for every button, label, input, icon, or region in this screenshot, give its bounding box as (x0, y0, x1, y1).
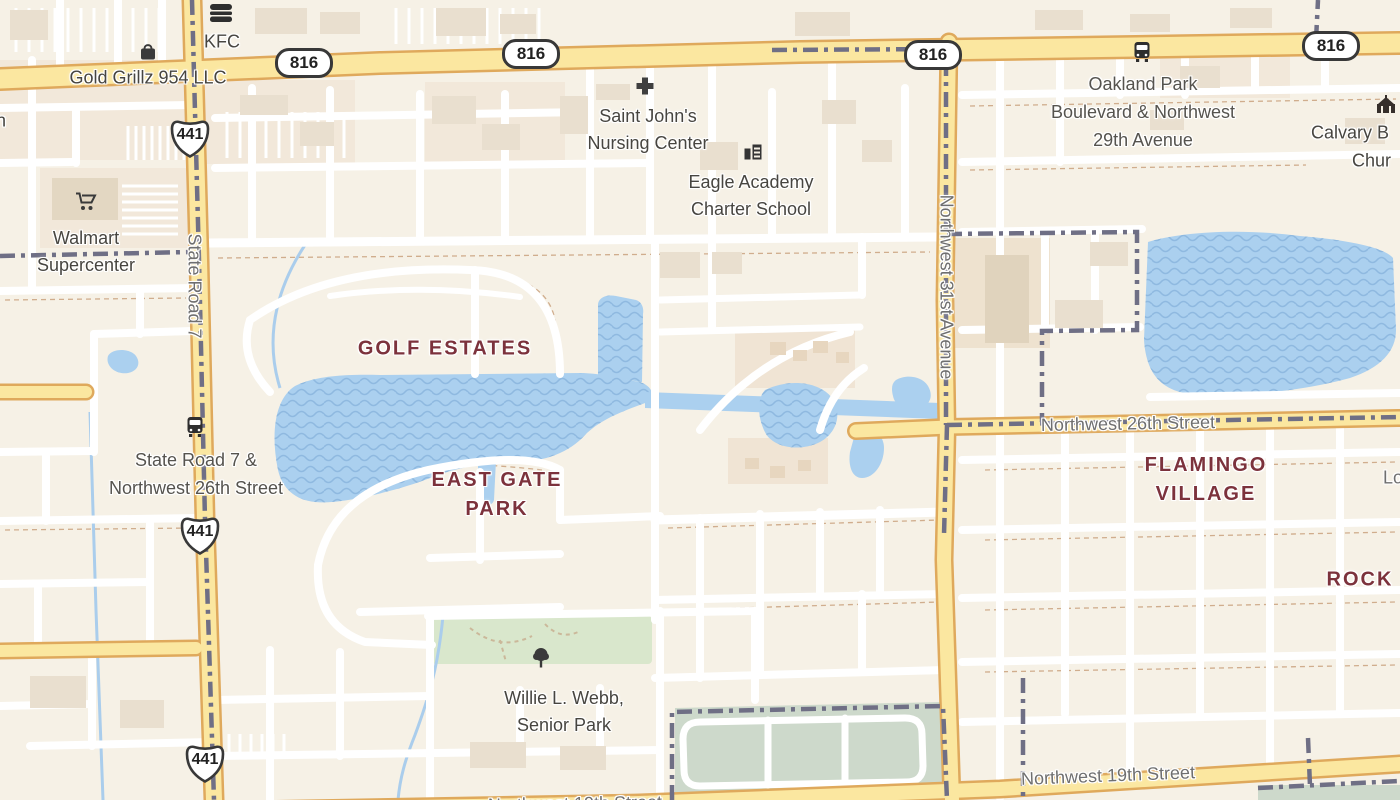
poi-label-line: Willie L. Webb, (504, 685, 624, 712)
poi-label-line: Eagle Academy (688, 169, 813, 196)
route-shield-number: 816 (919, 45, 947, 65)
poi-label-line: Senior Park (504, 712, 624, 739)
transit-stop-line: State Road 7 & (109, 446, 283, 474)
street-label-partial-right: Lo (1383, 468, 1400, 489)
neighborhood-label-rock: ROCK (1327, 566, 1394, 595)
street-label-state-road-7: State Road 7 (184, 233, 205, 338)
bus-icon[interactable] (1133, 42, 1151, 63)
transit-stop-line: Boulevard & Northwest (1051, 98, 1235, 126)
neighborhood-line: EAST GATE (432, 466, 563, 495)
route-shield-441: 441 (177, 515, 223, 557)
medical-cross-icon[interactable] (637, 78, 654, 95)
transit-stop-line: Northwest 26th Street (109, 474, 283, 502)
poi-label-line: Saint John's (587, 103, 708, 130)
poi-label-saint-johns[interactable]: Saint John's Nursing Center (587, 103, 708, 157)
poi-label-line: Charter School (688, 196, 813, 223)
route-shield-number: 441 (182, 751, 228, 769)
neighborhood-line: VILLAGE (1145, 480, 1268, 509)
transit-stop-line: Oakland Park (1051, 70, 1235, 98)
neighborhood-line: FLAMINGO (1145, 451, 1268, 480)
poi-label-gold-grillz[interactable]: Gold Grillz 954 LLC (69, 65, 226, 92)
neighborhood-label-east-gate-park: EAST GATE PARK (432, 466, 563, 524)
school-icon[interactable] (745, 145, 762, 160)
burger-icon[interactable] (210, 4, 232, 22)
route-shield-441: 441 (167, 118, 213, 160)
poi-label-line: Supercenter (37, 252, 135, 279)
transit-stop-label-oakland-park[interactable]: Oakland Park Boulevard & Northwest 29th … (1051, 70, 1235, 154)
neighborhood-label-flamingo-village: FLAMINGO VILLAGE (1145, 451, 1268, 509)
map-canvas[interactable]: 816 816 816 816 441 441 441 Gold Grillz (0, 0, 1400, 800)
neighborhood-line: PARK (432, 495, 563, 524)
church-icon[interactable] (1375, 95, 1397, 113)
route-shield-816: 816 (502, 39, 560, 69)
neighborhood-label-golf-estates: GOLF ESTATES (358, 335, 532, 364)
poi-label-calvary-line1[interactable]: Calvary B (1311, 120, 1389, 147)
poi-label-partial-left: n (0, 108, 6, 135)
transit-stop-label-state-road-7[interactable]: State Road 7 & Northwest 26th Street (109, 446, 283, 502)
tree-icon[interactable] (532, 648, 550, 669)
poi-label-calvary-line2[interactable]: Chur (1352, 148, 1391, 175)
poi-label-eagle-academy[interactable]: Eagle Academy Charter School (688, 169, 813, 223)
bus-icon[interactable] (186, 417, 204, 438)
route-shield-441: 441 (182, 743, 228, 785)
transit-stop-line: 29th Avenue (1051, 126, 1235, 154)
route-shield-number: 816 (1317, 36, 1345, 56)
poi-label-walmart[interactable]: Walmart Supercenter (37, 225, 135, 279)
route-shield-number: 816 (290, 53, 318, 73)
route-shield-number: 441 (167, 126, 213, 144)
route-shield-number: 816 (517, 44, 545, 64)
poi-label-line: Nursing Center (587, 130, 708, 157)
route-shield-816: 816 (1302, 31, 1360, 61)
poi-label-kfc[interactable]: KFC (204, 29, 240, 56)
shopping-cart-icon[interactable] (75, 193, 97, 212)
street-label-nw-31st-avenue: Northwest 31st Avenue (936, 195, 957, 380)
poi-label-willie-webb-park[interactable]: Willie L. Webb, Senior Park (504, 685, 624, 739)
route-shield-816: 816 (904, 40, 962, 70)
shopping-bag-icon[interactable] (138, 43, 158, 62)
route-shield-816: 816 (275, 48, 333, 78)
street-label-nw-26th-street: Northwest 26th Street (1041, 412, 1215, 436)
route-shield-number: 441 (177, 523, 223, 541)
poi-label-line: Walmart (37, 225, 135, 252)
